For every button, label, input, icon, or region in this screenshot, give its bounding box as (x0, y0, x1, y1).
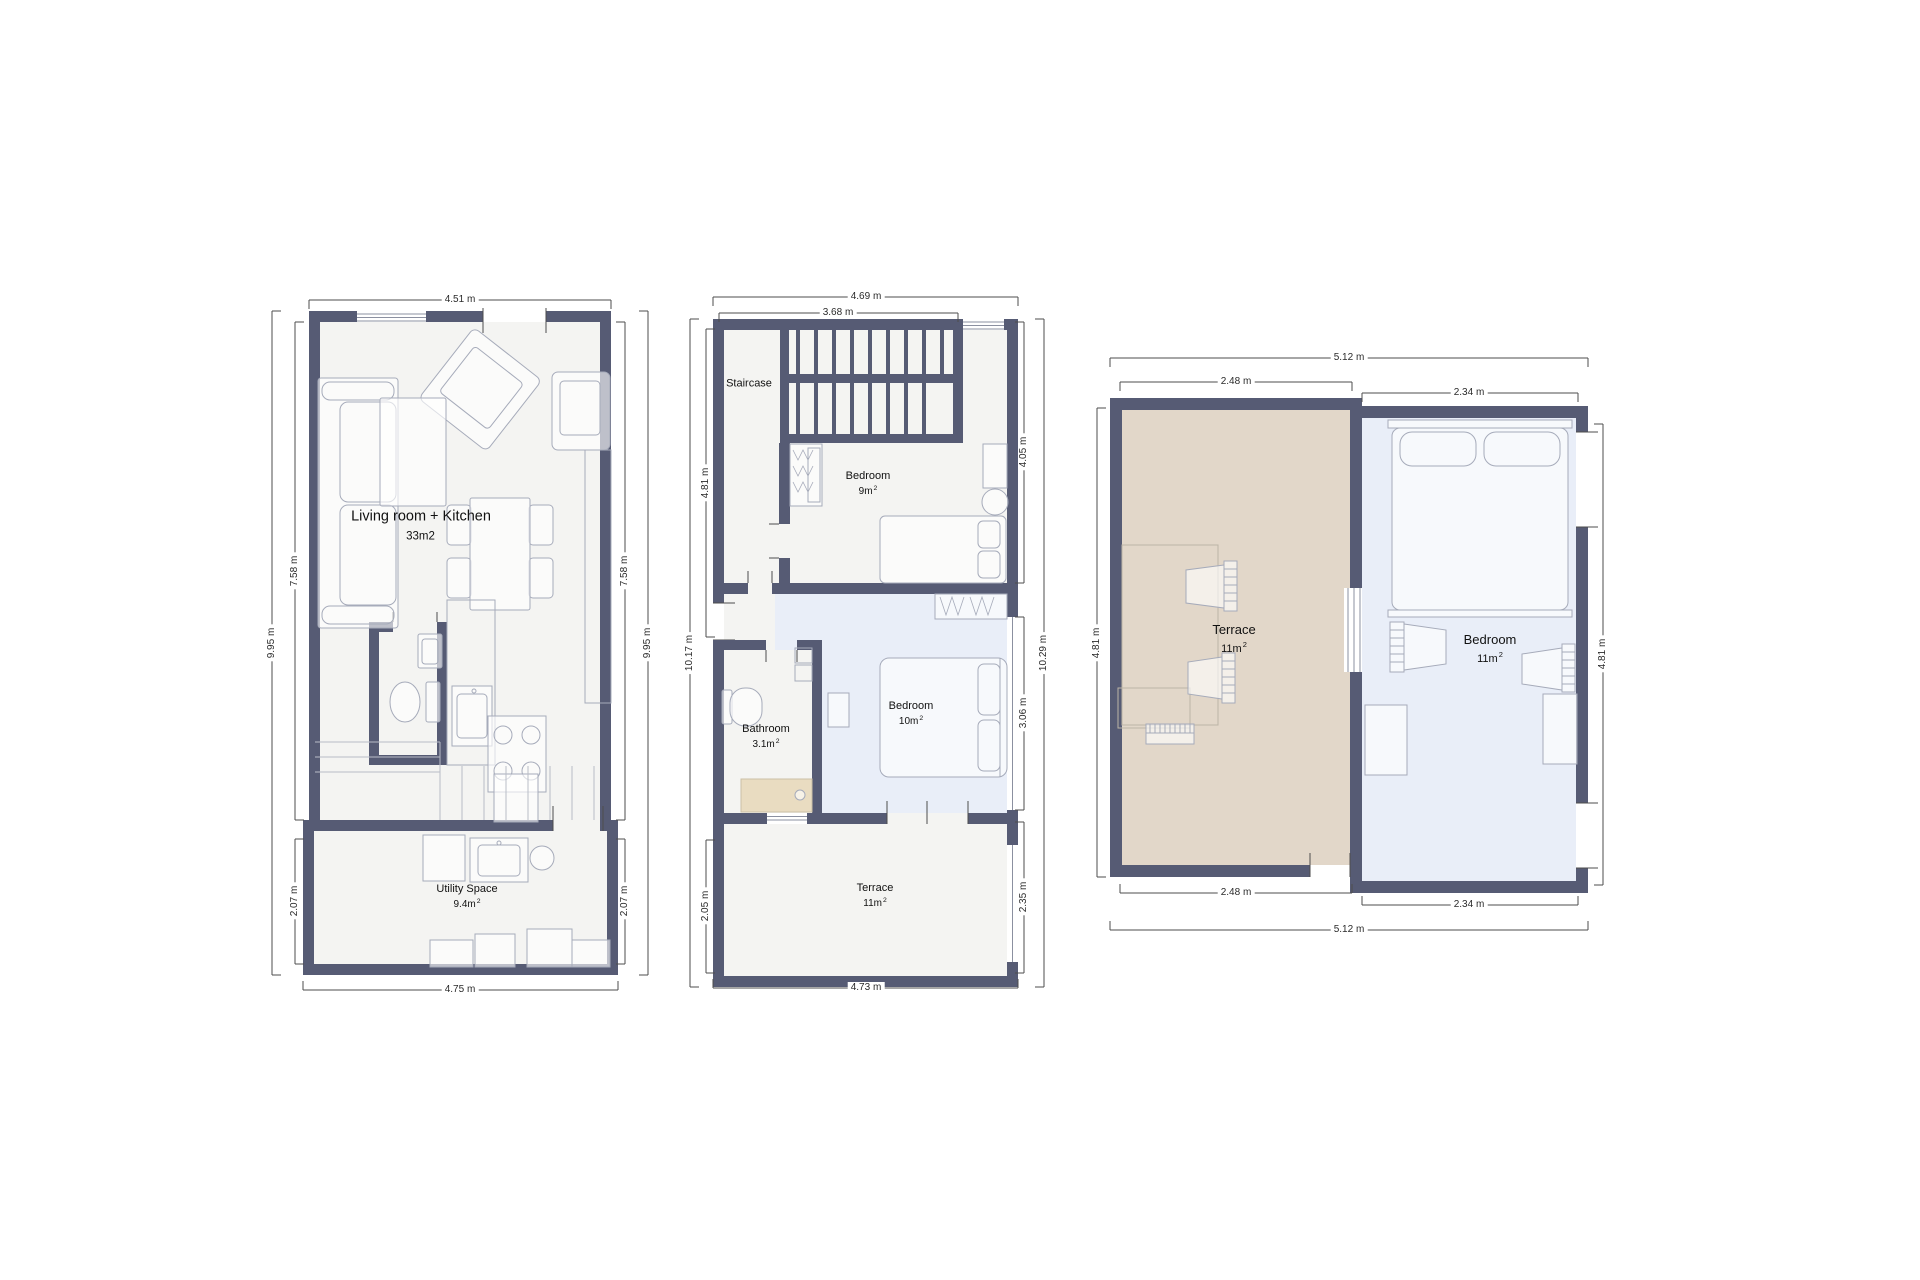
dim-f3-bottom-right: 2.34 m (1451, 899, 1488, 911)
washbasin-icon (983, 444, 1007, 488)
dim-f1-left-lower: 2.07 m (289, 883, 301, 920)
dim-f3-top-right: 2.34 m (1451, 387, 1488, 399)
door-icon (1344, 588, 1362, 672)
dim-f3-right: 4.81 m (1597, 636, 1609, 673)
floorplan-drawing (0, 0, 1920, 1280)
dim-f2-right-upper: 4.05 m (1018, 434, 1030, 471)
armchair-icon (552, 372, 610, 450)
double-bed-icon (1388, 420, 1572, 617)
floor-3-plan (1097, 358, 1603, 930)
dim-f1-top: 4.51 m (442, 294, 479, 306)
window-icon (1007, 845, 1018, 962)
utility-sink-icon (470, 838, 528, 882)
drain-icon (795, 790, 805, 800)
washer-icon (423, 835, 465, 881)
dim-f2-top-outer: 4.69 m (848, 291, 885, 303)
window-icon (767, 813, 807, 824)
dim-f2-right-middle: 3.06 m (1018, 695, 1030, 732)
sink-icon (418, 634, 442, 668)
dim-f3-bottom-outer: 5.12 m (1331, 924, 1368, 936)
kitchen-sink-icon (452, 686, 492, 746)
window-icon (1007, 617, 1018, 810)
toilet-icon (722, 688, 762, 726)
room-label-terrace-2: Terrace 11m2 (857, 882, 894, 910)
side-table-icon (828, 693, 849, 727)
cabinet-icon (1365, 705, 1407, 775)
dim-f3-top-left: 2.48 m (1218, 376, 1255, 388)
keyboard-icon (1146, 724, 1194, 744)
room-label-bathroom: Bathroom 3.1m2 (742, 723, 790, 751)
room-label-terrace-3: Terrace 11m2 (1212, 622, 1255, 656)
room-label-bedroom-10: Bedroom 10m2 (889, 700, 934, 728)
dim-f1-bottom: 4.75 m (442, 984, 479, 996)
dim-f2-left-upper: 4.81 m (700, 465, 712, 502)
window-icon (357, 311, 426, 322)
room-label-living-kitchen: Living room + Kitchen 33m2 (351, 509, 491, 544)
dim-f1-left-outer: 9.95 m (266, 625, 278, 662)
wardrobe-icon (790, 444, 822, 506)
dim-f2-bottom: 4.73 m (848, 982, 885, 994)
chair-icon (1390, 622, 1446, 672)
cabinet-icon (1543, 694, 1577, 764)
dim-f1-right-upper: 7.58 m (619, 553, 631, 590)
room-label-staircase: Staircase (726, 378, 772, 391)
room-label-bedroom-9: Bedroom 9m2 (846, 470, 891, 498)
floorplan-page: 4.51 m 4.75 m 9.95 m 7.58 m 2.07 m 9.95 … (0, 0, 1920, 1280)
single-bed-icon (880, 516, 1006, 583)
stool-icon (982, 489, 1008, 515)
dim-f3-left: 4.81 m (1091, 625, 1103, 662)
basin-icon (530, 846, 554, 870)
dim-f2-right-lower: 2.35 m (1018, 879, 1030, 916)
dim-f3-top-outer: 5.12 m (1331, 352, 1368, 364)
dim-f2-left-outer: 10.17 m (684, 632, 696, 674)
closet-icon (935, 594, 1007, 619)
dim-f1-right-lower: 2.07 m (619, 883, 631, 920)
chair-icon (1186, 561, 1237, 611)
dim-f2-right-outer: 10.29 m (1038, 632, 1050, 674)
chair-icon (1188, 653, 1235, 703)
dim-f2-top-inner: 3.68 m (820, 307, 857, 319)
dim-f1-left-upper: 7.58 m (289, 553, 301, 590)
coffee-table-icon (380, 398, 446, 506)
fridge-icon (494, 774, 538, 822)
room-label-utility-space: Utility Space 9.4m2 (436, 883, 497, 911)
room-label-bedroom-11: Bedroom 11m2 (1464, 632, 1517, 666)
dim-f1-right-outer: 9.95 m (642, 625, 654, 662)
toilet-icon (390, 682, 440, 722)
window-icon (958, 319, 1004, 330)
dim-f3-bottom-left: 2.48 m (1218, 887, 1255, 899)
dim-f2-left-lower: 2.05 m (700, 888, 712, 925)
